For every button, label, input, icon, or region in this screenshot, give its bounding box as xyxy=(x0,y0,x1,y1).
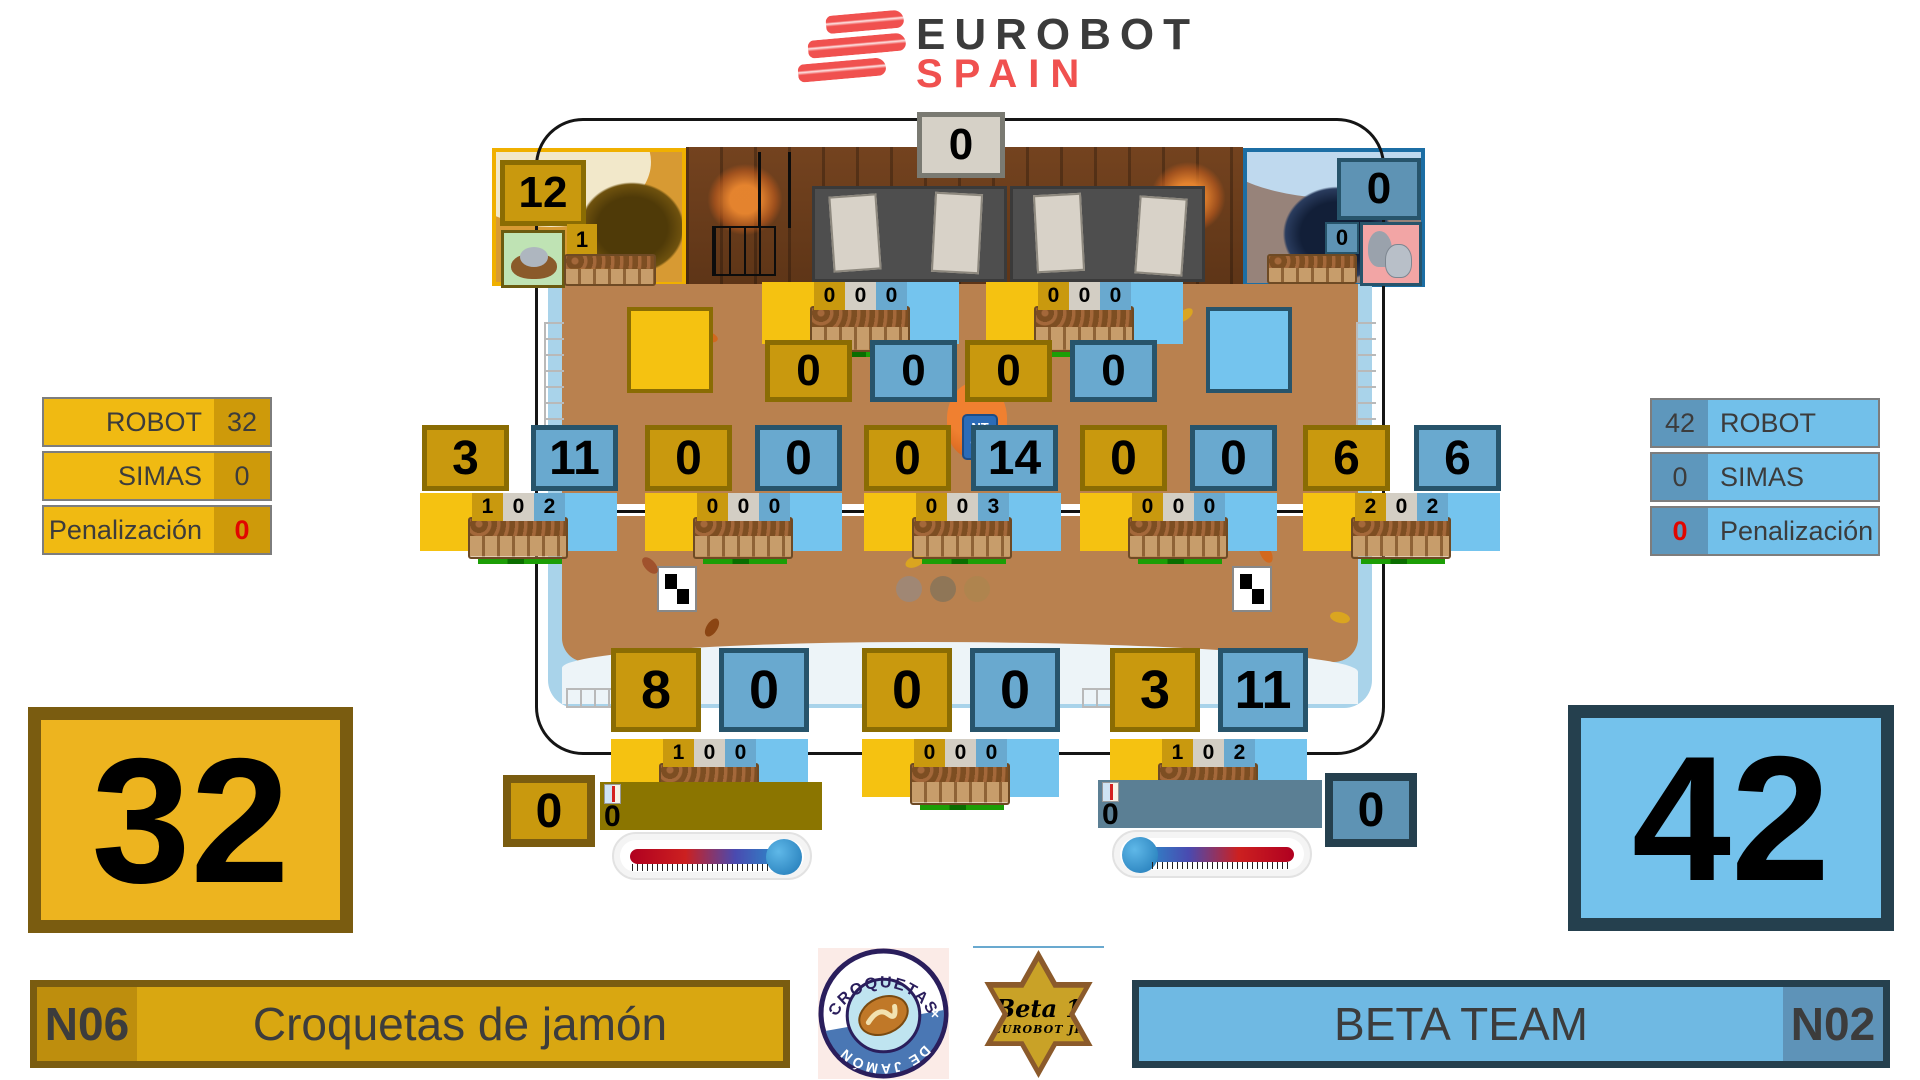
planter-cell[interactable]: 0 xyxy=(1038,282,1069,310)
score-box[interactable]: 0 xyxy=(645,425,732,491)
nut-crate-icon xyxy=(912,517,1012,559)
progress-bar-yellow xyxy=(600,782,822,830)
score-box[interactable]: 0 xyxy=(970,648,1060,732)
planter-cell[interactable]: 0 xyxy=(759,493,790,521)
planter-cell[interactable]: 0 xyxy=(1132,493,1163,521)
stat-label: ROBOT xyxy=(1708,400,1878,446)
left-stats-panel: ROBOT 32 SIMAS 0 Penalización 0 xyxy=(42,397,272,559)
svg-text:×: × xyxy=(931,1006,939,1022)
stat-label: ROBOT xyxy=(44,399,214,445)
planter-slot-yellow[interactable] xyxy=(862,739,914,797)
team-name-left: Croquetas de jamón xyxy=(137,987,783,1061)
planter-slot-blue[interactable] xyxy=(790,493,842,551)
score-box[interactable]: 6 xyxy=(1414,425,1501,491)
team-code-left: N06 xyxy=(37,987,137,1061)
svg-text:×: × xyxy=(826,1006,834,1022)
team-logo-beta: Beta 1 EUROBOT JR xyxy=(973,946,1104,1079)
stat-row-robot: 42 ROBOT xyxy=(1650,398,1880,448)
beta-badge-subtitle: EUROBOT JR xyxy=(992,1023,1084,1036)
penalty-value: 0 xyxy=(1652,508,1708,554)
score-box[interactable]: 11 xyxy=(1218,648,1308,732)
team-bar-right: BETA TEAM N02 xyxy=(1132,980,1890,1068)
planter-cell[interactable]: 0 xyxy=(914,739,945,767)
stat-label: SIMAS xyxy=(1708,454,1878,500)
nut-crate-icon xyxy=(693,517,793,559)
planter-cell[interactable]: 0 xyxy=(1193,739,1224,767)
nut-crate-icon xyxy=(468,517,568,559)
planter-slot-blue[interactable] xyxy=(1007,739,1059,797)
planter-cell[interactable]: 0 xyxy=(814,282,845,310)
planter-cell[interactable]: 0 xyxy=(945,739,976,767)
stat-row-simas: SIMAS 0 xyxy=(42,451,272,501)
planter-cell[interactable]: 0 xyxy=(503,493,534,521)
planter-cell[interactable]: 0 xyxy=(725,739,756,767)
planter-cell[interactable]: 3 xyxy=(978,493,1009,521)
score-box[interactable]: 0 xyxy=(870,340,957,402)
croquetas-badge-icon: CROQUETAS DE JAMÓN × × xyxy=(818,948,949,1079)
planter-cell[interactable]: 2 xyxy=(1355,493,1386,521)
score-box[interactable]: 0 xyxy=(1070,340,1157,402)
score-box[interactable]: 6 xyxy=(1303,425,1390,491)
thermometer-slider-right[interactable] xyxy=(1112,830,1312,878)
tray-score-box-yellow[interactable]: 0 xyxy=(503,775,595,847)
planter-cell[interactable]: 0 xyxy=(694,739,725,767)
team-name-right: BETA TEAM xyxy=(1139,987,1783,1061)
bar-value-yellow: 0 xyxy=(604,800,621,834)
crate-progress xyxy=(1138,559,1222,564)
penalty-value: 0 xyxy=(214,507,270,553)
planter-slot-blue[interactable] xyxy=(1131,282,1183,344)
crate-progress xyxy=(1361,559,1445,564)
planter-cell[interactable]: 0 xyxy=(916,493,947,521)
crate-progress xyxy=(920,805,1004,810)
planter-slot-blue[interactable] xyxy=(1225,493,1277,551)
total-score-right: 42 xyxy=(1568,705,1894,931)
stat-label: Penalización xyxy=(1708,508,1878,554)
planter-cell[interactable]: 1 xyxy=(1162,739,1193,767)
score-box[interactable]: 11 xyxy=(531,425,618,491)
score-box[interactable]: 0 xyxy=(1190,425,1277,491)
team-bar-left: N06 Croquetas de jamón xyxy=(30,980,790,1068)
total-score-left: 32 xyxy=(28,707,353,933)
team-logo-croquetas: CROQUETAS DE JAMÓN × × xyxy=(818,948,949,1079)
planter-slot-blue[interactable] xyxy=(1009,493,1061,551)
planter-slot-yellow[interactable] xyxy=(986,282,1038,344)
planter-cell[interactable]: 0 xyxy=(697,493,728,521)
team-code-right: N02 xyxy=(1783,987,1883,1061)
score-box[interactable]: 0 xyxy=(965,340,1052,402)
stat-row-penalty: Penalización 0 xyxy=(42,505,272,555)
nut-crate-icon xyxy=(1128,517,1228,559)
planter-slot-yellow[interactable] xyxy=(864,493,916,551)
bar-value-blue: 0 xyxy=(1102,798,1119,832)
score-box[interactable]: 0 xyxy=(862,648,952,732)
planter-slot-yellow[interactable] xyxy=(645,493,697,551)
right-stats-panel: 42 ROBOT 0 SIMAS 0 Penalización xyxy=(1650,398,1880,560)
score-box[interactable]: 14 xyxy=(971,425,1058,491)
planter-cell[interactable]: 0 xyxy=(1386,493,1417,521)
beta-badge-title: Beta 1 xyxy=(995,994,1082,1023)
thermometer-slider-left[interactable] xyxy=(612,832,812,880)
progress-bar-blue xyxy=(1098,780,1322,828)
planter-slot-yellow[interactable] xyxy=(1080,493,1132,551)
stat-row-simas: 0 SIMAS xyxy=(1650,452,1880,502)
planter-cell[interactable]: 0 xyxy=(728,493,759,521)
planter-slot-blue[interactable] xyxy=(1448,493,1500,551)
nut-crate-icon xyxy=(910,763,1010,805)
crate-progress xyxy=(922,559,1006,564)
stat-label: Penalización xyxy=(44,507,214,553)
planter-cell[interactable]: 0 xyxy=(1163,493,1194,521)
stat-value: 32 xyxy=(214,399,270,445)
stat-value: 0 xyxy=(1652,454,1708,500)
stat-row-penalty: 0 Penalización xyxy=(1650,506,1880,556)
planter-cell[interactable]: 2 xyxy=(534,493,565,521)
planter-cell[interactable]: 0 xyxy=(976,739,1007,767)
planter-slot-yellow[interactable] xyxy=(762,282,814,344)
planter-cell[interactable]: 2 xyxy=(1224,739,1255,767)
scoreboard-app: EUROBOT SPAIN NT ON xyxy=(0,0,1920,1080)
score-box[interactable]: 0 xyxy=(765,340,852,402)
planter-cell[interactable]: 2 xyxy=(1417,493,1448,521)
planter-slot-yellow[interactable] xyxy=(1303,493,1355,551)
planter-cell[interactable]: 0 xyxy=(1069,282,1100,310)
score-box[interactable]: 3 xyxy=(422,425,509,491)
planter-cell[interactable]: 1 xyxy=(472,493,503,521)
tray-score-box-blue[interactable]: 0 xyxy=(1325,773,1417,847)
planter-slot-yellow[interactable] xyxy=(420,493,472,551)
planter-cell[interactable]: 0 xyxy=(1194,493,1225,521)
score-box[interactable]: 0 xyxy=(864,425,951,491)
planter-cell[interactable]: 0 xyxy=(1100,282,1131,310)
stat-label: SIMAS xyxy=(44,453,214,499)
crate-progress xyxy=(703,559,787,564)
score-box[interactable]: 0 xyxy=(719,648,809,732)
stat-row-robot: ROBOT 32 xyxy=(42,397,272,447)
score-box[interactable]: 3 xyxy=(1110,648,1200,732)
planter-cell[interactable]: 1 xyxy=(663,739,694,767)
score-box[interactable]: 0 xyxy=(755,425,842,491)
nut-crate-icon xyxy=(1351,517,1451,559)
stat-value: 42 xyxy=(1652,400,1708,446)
planter-slot-blue[interactable] xyxy=(907,282,959,344)
score-box[interactable]: 8 xyxy=(611,648,701,732)
crate-progress xyxy=(478,559,562,564)
beta-star-inner: Beta 1 EUROBOT JR xyxy=(986,961,1091,1068)
score-box[interactable]: 0 xyxy=(1080,425,1167,491)
planter-cell[interactable]: 0 xyxy=(845,282,876,310)
planter-slot-blue[interactable] xyxy=(565,493,617,551)
stat-value: 0 xyxy=(214,453,270,499)
planter-cell[interactable]: 0 xyxy=(876,282,907,310)
planter-cell[interactable]: 0 xyxy=(947,493,978,521)
